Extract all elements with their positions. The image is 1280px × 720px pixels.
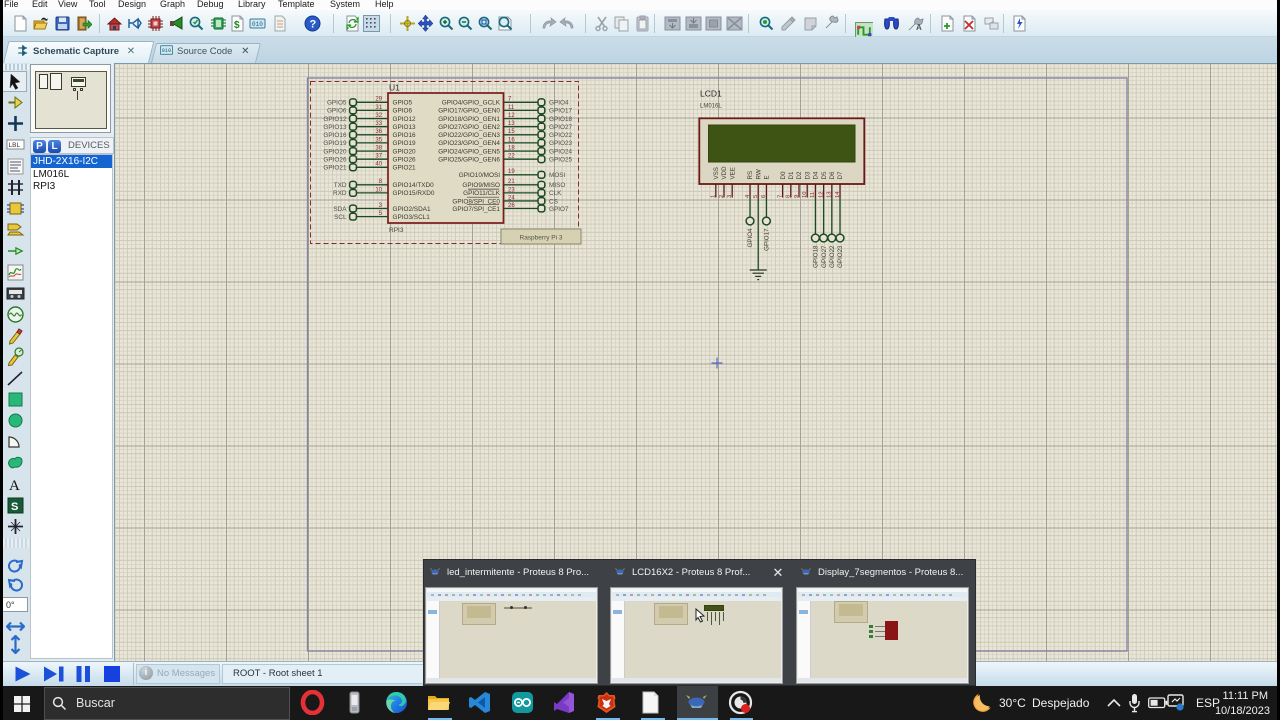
svg-text:GPIO27: GPIO27 [549,124,573,131]
svg-text:2: 2 [719,195,725,198]
svg-text:SCL: SCL [334,214,347,221]
svg-text:10: 10 [802,192,808,198]
svg-text:RXD: RXD [333,190,347,197]
svg-text:15: 15 [508,129,515,135]
svg-text:VDD: VDD [721,166,728,180]
svg-text:GPIO15/RXD0: GPIO15/RXD0 [393,190,435,197]
svg-text:GPIO27: GPIO27 [821,245,828,268]
svg-text:D4: D4 [813,171,820,179]
svg-text:CS: CS [549,198,558,205]
svg-text:GPIO16: GPIO16 [393,132,417,139]
svg-text:GPIO11/CLK: GPIO11/CLK [463,190,501,197]
svg-text:36: 36 [375,129,382,135]
svg-text:GPIO6: GPIO6 [393,108,413,115]
svg-text:GPIO25/GPIO_GEN6: GPIO25/GPIO_GEN6 [438,157,500,164]
svg-text:RW: RW [755,169,762,179]
svg-text:D7: D7 [837,171,844,179]
svg-text:33: 33 [375,121,382,127]
svg-text:3: 3 [727,195,733,198]
svg-text:Raspberry Pi 3: Raspberry Pi 3 [520,235,563,242]
svg-text:1: 1 [711,195,717,198]
svg-text:GPIO10/MOSI: GPIO10/MOSI [459,172,500,179]
svg-text:GPIO19: GPIO19 [323,140,347,147]
svg-text:CLK: CLK [549,190,562,197]
svg-text:E: E [764,175,771,179]
svg-text:GPIO18: GPIO18 [549,116,573,123]
svg-text:GPIO14/TXD0: GPIO14/TXD0 [393,182,435,189]
svg-text:D5: D5 [821,171,828,179]
svg-text:13: 13 [827,192,833,198]
svg-text:23: 23 [508,187,515,193]
svg-text:32: 32 [375,113,382,119]
svg-text:S: S [11,501,18,513]
svg-text:GPIO19: GPIO19 [393,140,417,147]
svg-text:GPIO7/SPI_CE1: GPIO7/SPI_CE1 [452,206,500,213]
svg-text:GPIO25: GPIO25 [549,157,573,164]
svg-text:10: 10 [375,187,382,193]
svg-text:22: 22 [508,154,515,160]
svg-text:RS: RS [747,171,754,180]
svg-text:GPIO26: GPIO26 [393,157,417,164]
svg-text:D3: D3 [804,171,811,179]
svg-text:GPIO13: GPIO13 [323,124,347,131]
svg-text:GPIO23/GPIO_GEN4: GPIO23/GPIO_GEN4 [438,140,500,147]
svg-text:GPIO17/GPIO_GEN0: GPIO17/GPIO_GEN0 [438,108,500,115]
svg-text:38: 38 [375,146,382,152]
svg-text:GPIO18: GPIO18 [813,245,820,268]
svg-text:GPIO16: GPIO16 [323,132,347,139]
svg-text:GPIO27/GPIO_GEN2: GPIO27/GPIO_GEN2 [438,124,500,131]
svg-text:13: 13 [508,121,515,127]
svg-text:GPIO26: GPIO26 [323,157,347,164]
svg-text:11: 11 [810,192,816,198]
svg-text:29: 29 [375,97,382,103]
svg-text:?: ? [310,19,317,31]
svg-text:GPIO5: GPIO5 [327,100,347,107]
svg-text:$: $ [234,20,240,31]
svg-text:GPIO4: GPIO4 [747,228,754,247]
svg-text:GPIO21: GPIO21 [323,165,347,172]
svg-text:12: 12 [508,113,515,119]
svg-text:GPIO5: GPIO5 [393,100,413,107]
svg-text:GPIO17: GPIO17 [764,228,771,251]
svg-text:GPIO17: GPIO17 [549,108,573,115]
svg-text:SDA: SDA [333,206,347,213]
svg-text:D2: D2 [796,171,803,179]
svg-text:LCD1: LCD1 [700,89,722,99]
svg-text:18: 18 [508,146,515,152]
svg-text:VEE: VEE [729,167,736,179]
svg-text:TXD: TXD [334,182,347,189]
svg-text:GPIO9/MISO: GPIO9/MISO [462,182,500,189]
svg-text:RPI3: RPI3 [389,227,404,234]
svg-text:40: 40 [375,162,382,168]
svg-text:GPIO4: GPIO4 [549,100,569,107]
svg-text:A: A [916,23,922,32]
svg-text:GPIO22: GPIO22 [829,245,836,268]
svg-text:24: 24 [508,195,515,201]
svg-text:VSS: VSS [713,167,720,179]
svg-text:GPIO23: GPIO23 [549,140,573,147]
svg-text:GPIO4/GPIO_GCLK: GPIO4/GPIO_GCLK [442,100,501,107]
svg-text:GPIO21: GPIO21 [393,165,417,172]
svg-text:GPIO12: GPIO12 [393,116,417,123]
svg-text:11: 11 [508,105,515,111]
svg-text:GPIO20: GPIO20 [323,148,347,155]
svg-text:GPIO13: GPIO13 [393,124,417,131]
svg-text:GPIO2/SDA1: GPIO2/SDA1 [393,206,431,213]
svg-text:GPIO23: GPIO23 [837,245,844,268]
svg-text:D6: D6 [829,171,836,179]
svg-text:U1: U1 [389,83,400,93]
svg-text:MOSI: MOSI [549,172,566,179]
svg-text:GPIO8/SPI_CE0: GPIO8/SPI_CE0 [452,198,500,205]
svg-text:LBL: LBL [9,142,21,149]
svg-text:010: 010 [252,21,263,28]
svg-text:8: 8 [786,195,792,198]
svg-text:19: 19 [508,169,515,175]
svg-text:GPIO12: GPIO12 [323,116,347,123]
svg-text:A: A [9,478,20,494]
svg-text:GPIO22: GPIO22 [549,132,573,139]
svg-text:010: 010 [162,48,171,54]
svg-text:D1: D1 [788,171,795,179]
svg-text:GPIO7: GPIO7 [549,206,569,213]
svg-text:9: 9 [794,195,800,198]
svg-text:GPIO20: GPIO20 [393,148,417,155]
svg-text:26: 26 [508,203,515,209]
svg-text:GPIO22/GPIO_GEN3: GPIO22/GPIO_GEN3 [438,132,500,139]
svg-text:21: 21 [508,179,515,185]
svg-text:GPIO6: GPIO6 [327,108,347,115]
svg-text:14: 14 [835,191,841,198]
svg-text:GPIO24/GPIO_GEN5: GPIO24/GPIO_GEN5 [438,148,500,155]
svg-text:D0: D0 [780,171,787,179]
svg-text:35: 35 [375,137,382,143]
svg-text:MISO: MISO [549,182,565,189]
svg-text:16: 16 [508,137,515,143]
svg-text:GPIO3/SCL1: GPIO3/SCL1 [393,214,431,221]
svg-text:37: 37 [375,154,382,160]
svg-text:GPIO24: GPIO24 [549,148,573,155]
svg-text:7: 7 [777,195,783,198]
svg-text:12: 12 [818,192,824,198]
svg-text:31: 31 [375,105,382,111]
svg-text:LM016L: LM016L [700,104,722,110]
svg-text:GPIO18/GPIO_GEN1: GPIO18/GPIO_GEN1 [438,116,500,123]
